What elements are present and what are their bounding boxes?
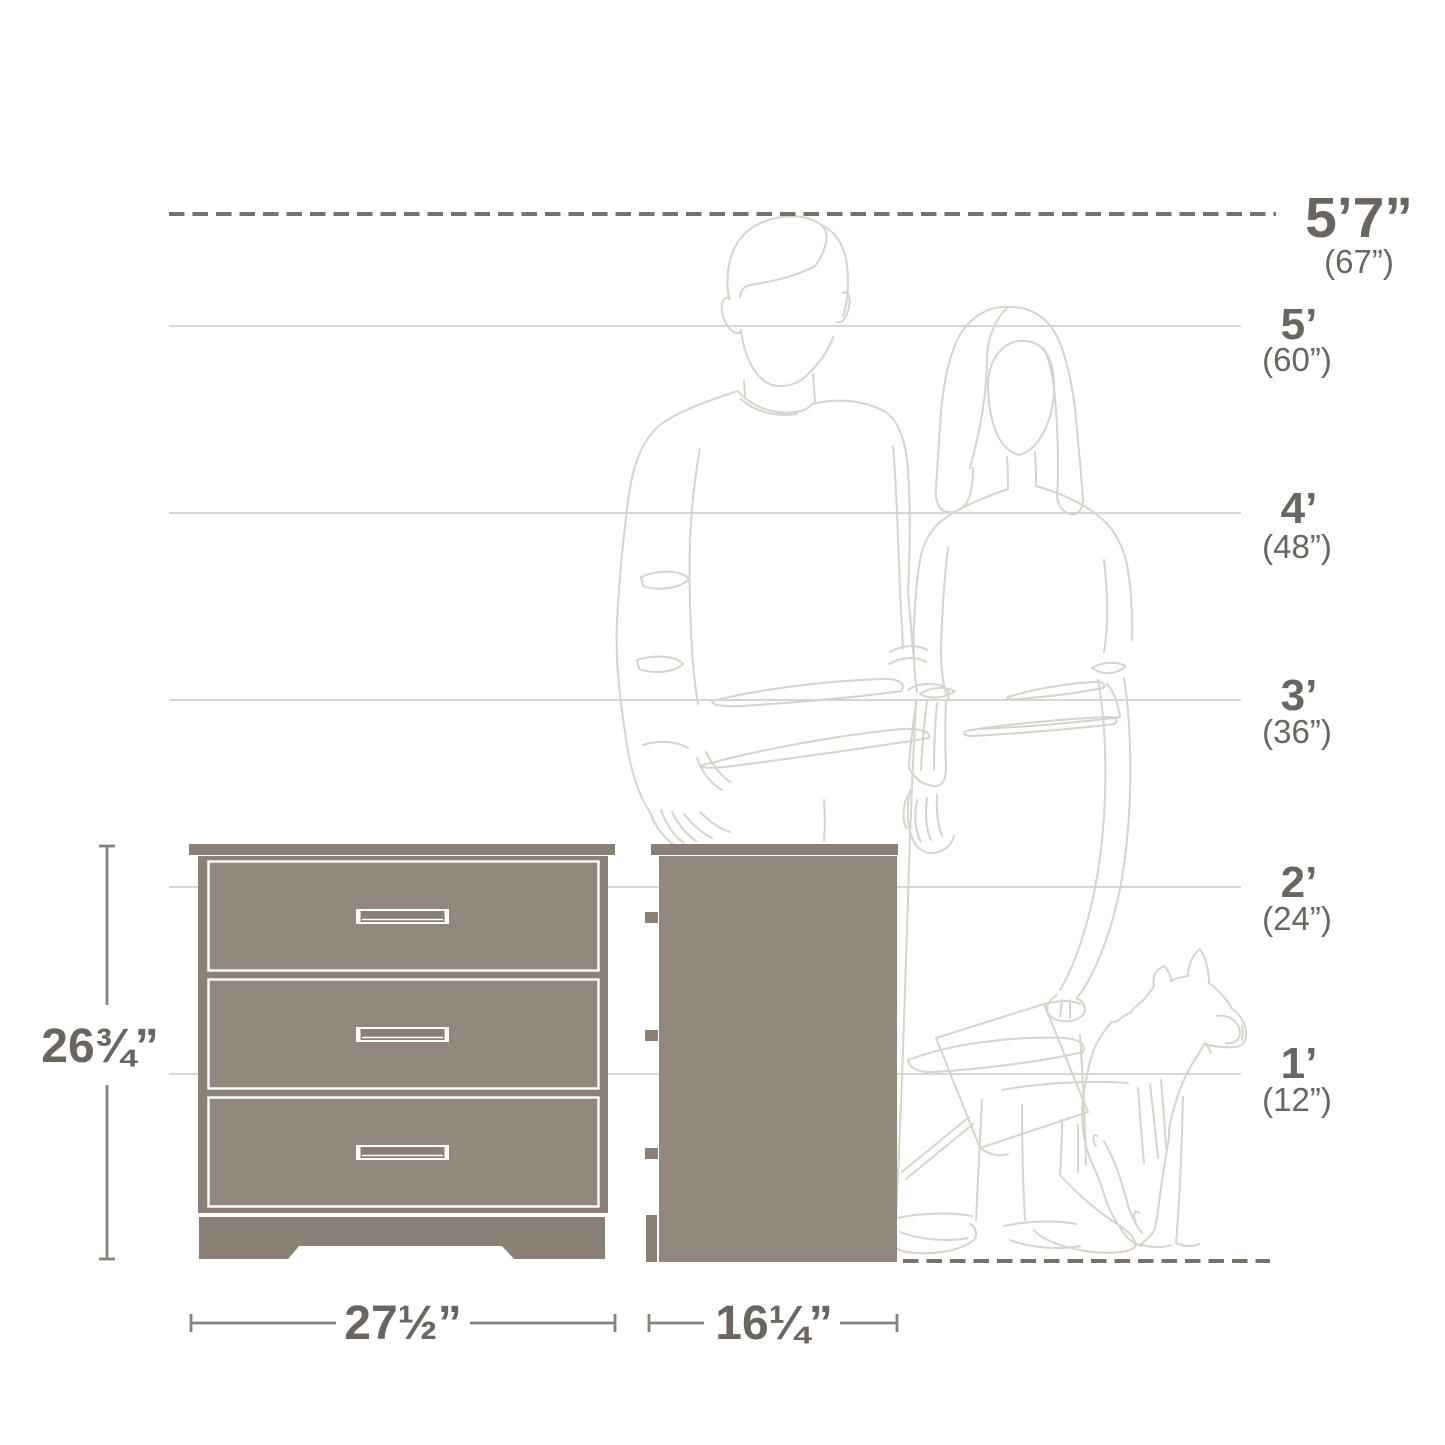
svg-text:(24”): (24”) — [1262, 900, 1332, 937]
svg-text:(67”): (67”) — [1324, 243, 1394, 280]
svg-text:5’7”: 5’7” — [1305, 186, 1413, 250]
svg-text:26¾”: 26¾” — [41, 1020, 158, 1073]
svg-text:16¼”: 16¼” — [715, 1297, 832, 1350]
svg-text:(60”): (60”) — [1262, 341, 1332, 378]
svg-text:(12”): (12”) — [1262, 1081, 1332, 1118]
svg-text:27½”: 27½” — [344, 1297, 461, 1350]
svg-text:4’: 4’ — [1281, 484, 1318, 533]
svg-text:(48”): (48”) — [1262, 528, 1332, 565]
svg-text:(36”): (36”) — [1262, 713, 1332, 750]
